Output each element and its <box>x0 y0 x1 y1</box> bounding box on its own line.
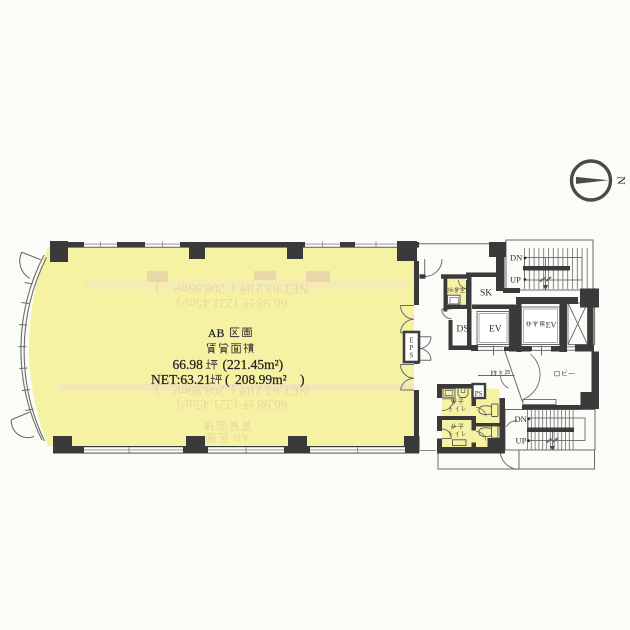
svg-text:PS: PS <box>475 391 483 398</box>
svg-text:S: S <box>410 353 414 360</box>
svg-text:(221.45m²): (221.45m²) <box>177 296 238 311</box>
svg-text:66.98: 66.98 <box>257 296 288 311</box>
svg-text:SK: SK <box>480 289 492 299</box>
svg-text:DS: DS <box>457 325 469 335</box>
svg-text:DN: DN <box>515 414 527 424</box>
svg-text:EV: EV <box>489 325 502 335</box>
svg-text:EV: EV <box>546 320 557 329</box>
svg-text:UP: UP <box>516 436 527 446</box>
svg-text:AB: AB <box>208 328 225 340</box>
svg-text:(: ( <box>230 282 235 297</box>
svg-text:NET:63.21: NET:63.21 <box>151 372 211 387</box>
svg-text:AB: AB <box>233 430 250 442</box>
svg-text:UP: UP <box>510 275 521 285</box>
svg-text:(: ( <box>225 372 230 387</box>
svg-text:): ) <box>156 282 161 297</box>
svg-text:DN: DN <box>510 253 522 263</box>
svg-text:): ) <box>300 372 305 387</box>
svg-text:208.99m²: 208.99m² <box>235 372 287 387</box>
svg-text:NET:63.21: NET:63.21 <box>249 282 309 297</box>
svg-text:E: E <box>409 338 413 345</box>
svg-text:66.98: 66.98 <box>173 357 204 372</box>
svg-text:N: N <box>615 176 629 185</box>
svg-text:208.99m²: 208.99m² <box>173 282 225 297</box>
svg-text:(221.45m²): (221.45m²) <box>223 357 284 372</box>
svg-text:P: P <box>410 345 414 352</box>
